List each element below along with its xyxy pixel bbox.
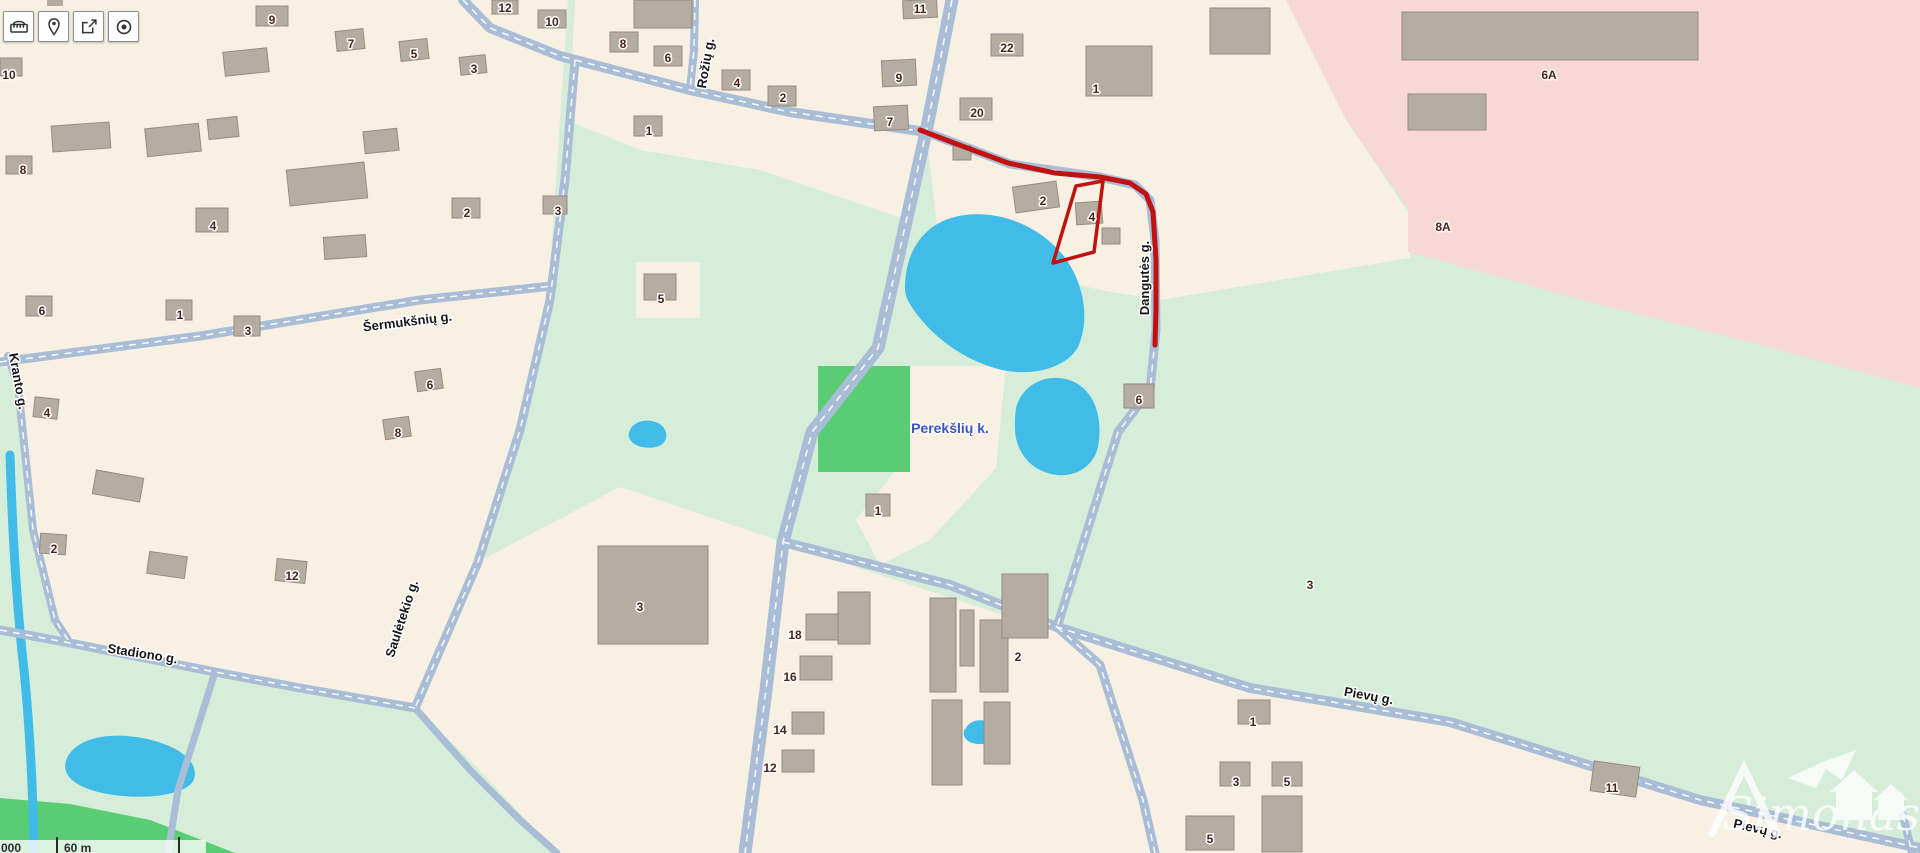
building — [1408, 94, 1486, 130]
building — [1002, 574, 1048, 638]
house-number: 1 — [875, 504, 882, 518]
house-number: 5 — [1284, 775, 1291, 789]
building — [147, 551, 188, 578]
target-icon — [114, 17, 134, 37]
house-number: 6A — [1541, 68, 1557, 82]
building — [598, 546, 708, 644]
pin-icon — [44, 17, 64, 37]
scale-tick — [178, 837, 180, 853]
map-toolbar — [3, 11, 139, 42]
house-number: 16 — [783, 670, 797, 684]
house-number: 2 — [1015, 650, 1022, 664]
house-number: 6 — [39, 304, 46, 318]
house-number: 3 — [245, 324, 252, 338]
building — [838, 592, 870, 644]
house-number: 18 — [788, 628, 802, 642]
house-number: 6 — [427, 378, 434, 392]
building — [782, 750, 814, 772]
building — [960, 610, 974, 666]
house-number: 8 — [620, 37, 627, 51]
small-pond-east — [1015, 378, 1100, 475]
house-number: 2 — [464, 206, 471, 220]
house-number: 3 — [555, 204, 562, 218]
house-number: 5 — [1207, 832, 1214, 846]
house-number: 1 — [646, 124, 653, 138]
place-label: Perekšlių k. — [911, 420, 989, 436]
building — [223, 48, 269, 76]
building — [792, 712, 824, 734]
playground-green — [818, 366, 910, 472]
house-number: 2 — [780, 91, 787, 105]
house-number: 11 — [1606, 781, 1619, 795]
house-number: 10 — [545, 15, 559, 29]
house-number: 3 — [471, 62, 478, 76]
building — [1102, 228, 1120, 244]
house-number: 7 — [887, 115, 894, 129]
locate-button[interactable] — [108, 11, 139, 42]
share-icon — [79, 17, 99, 37]
house-number: 6 — [665, 51, 672, 65]
scale-tick — [56, 837, 58, 853]
house-number: 8A — [1435, 220, 1451, 234]
scale-distance-label: 60 m — [64, 841, 91, 853]
ruler-icon — [9, 17, 29, 37]
building — [930, 598, 956, 692]
building — [363, 128, 399, 153]
house-number: 6 — [1136, 393, 1143, 407]
house-number: 12 — [763, 761, 777, 775]
house-number: 4 — [44, 406, 51, 420]
share-button[interactable] — [73, 11, 104, 42]
building — [51, 122, 111, 152]
house-number: 2 — [1040, 194, 1047, 208]
building — [207, 116, 239, 139]
building — [286, 162, 367, 206]
building — [145, 123, 202, 156]
house-number: 3 — [637, 600, 644, 614]
measure-button[interactable] — [3, 11, 34, 42]
house-number: 7 — [348, 37, 355, 51]
building — [800, 656, 832, 680]
building — [932, 700, 962, 785]
building — [323, 235, 366, 260]
scale-bar: 000 60 m — [0, 840, 206, 853]
map-canvas[interactable]: 9753108423613684212121086421511972220124… — [0, 0, 1920, 853]
collapsed-panel-tab[interactable] — [47, 0, 63, 6]
house-number: 20 — [970, 106, 984, 120]
street-label: Dangutės g. — [1137, 241, 1152, 315]
map-viewer: 9753108423613684212121086421511972220124… — [0, 0, 1920, 853]
house-number: 5 — [658, 292, 665, 306]
house-number: 4 — [734, 76, 741, 90]
house-number: 12 — [498, 1, 512, 15]
house-number: 8 — [395, 426, 402, 440]
house-number: 5 — [411, 47, 418, 61]
house-number: 12 — [285, 569, 299, 583]
house-number: 22 — [1000, 41, 1014, 55]
location-pin-button[interactable] — [38, 11, 69, 42]
house-number: 2 — [51, 542, 58, 556]
house-number: 10 — [2, 68, 16, 82]
building — [1210, 8, 1270, 54]
house-number: 14 — [773, 723, 787, 737]
house-number: 9 — [269, 13, 276, 27]
building — [984, 702, 1010, 764]
house-number: 8 — [20, 163, 27, 177]
house-number: 4 — [210, 219, 217, 233]
house-number: 1 — [177, 308, 184, 322]
building — [634, 0, 692, 28]
building — [1262, 796, 1302, 852]
scale-ratio-text: 000 — [1, 841, 21, 853]
house-number: 11 — [914, 2, 927, 16]
house-number: 3 — [1233, 775, 1240, 789]
house-number: 9 — [896, 71, 903, 85]
house-number: 4 — [1089, 210, 1096, 224]
house-number: 1 — [1250, 715, 1257, 729]
house-number: 3 — [1307, 578, 1314, 592]
house-number: 1 — [1093, 82, 1100, 96]
watermark-text: Simonas — [1722, 787, 1920, 841]
building — [1012, 181, 1059, 213]
building — [1402, 12, 1698, 60]
